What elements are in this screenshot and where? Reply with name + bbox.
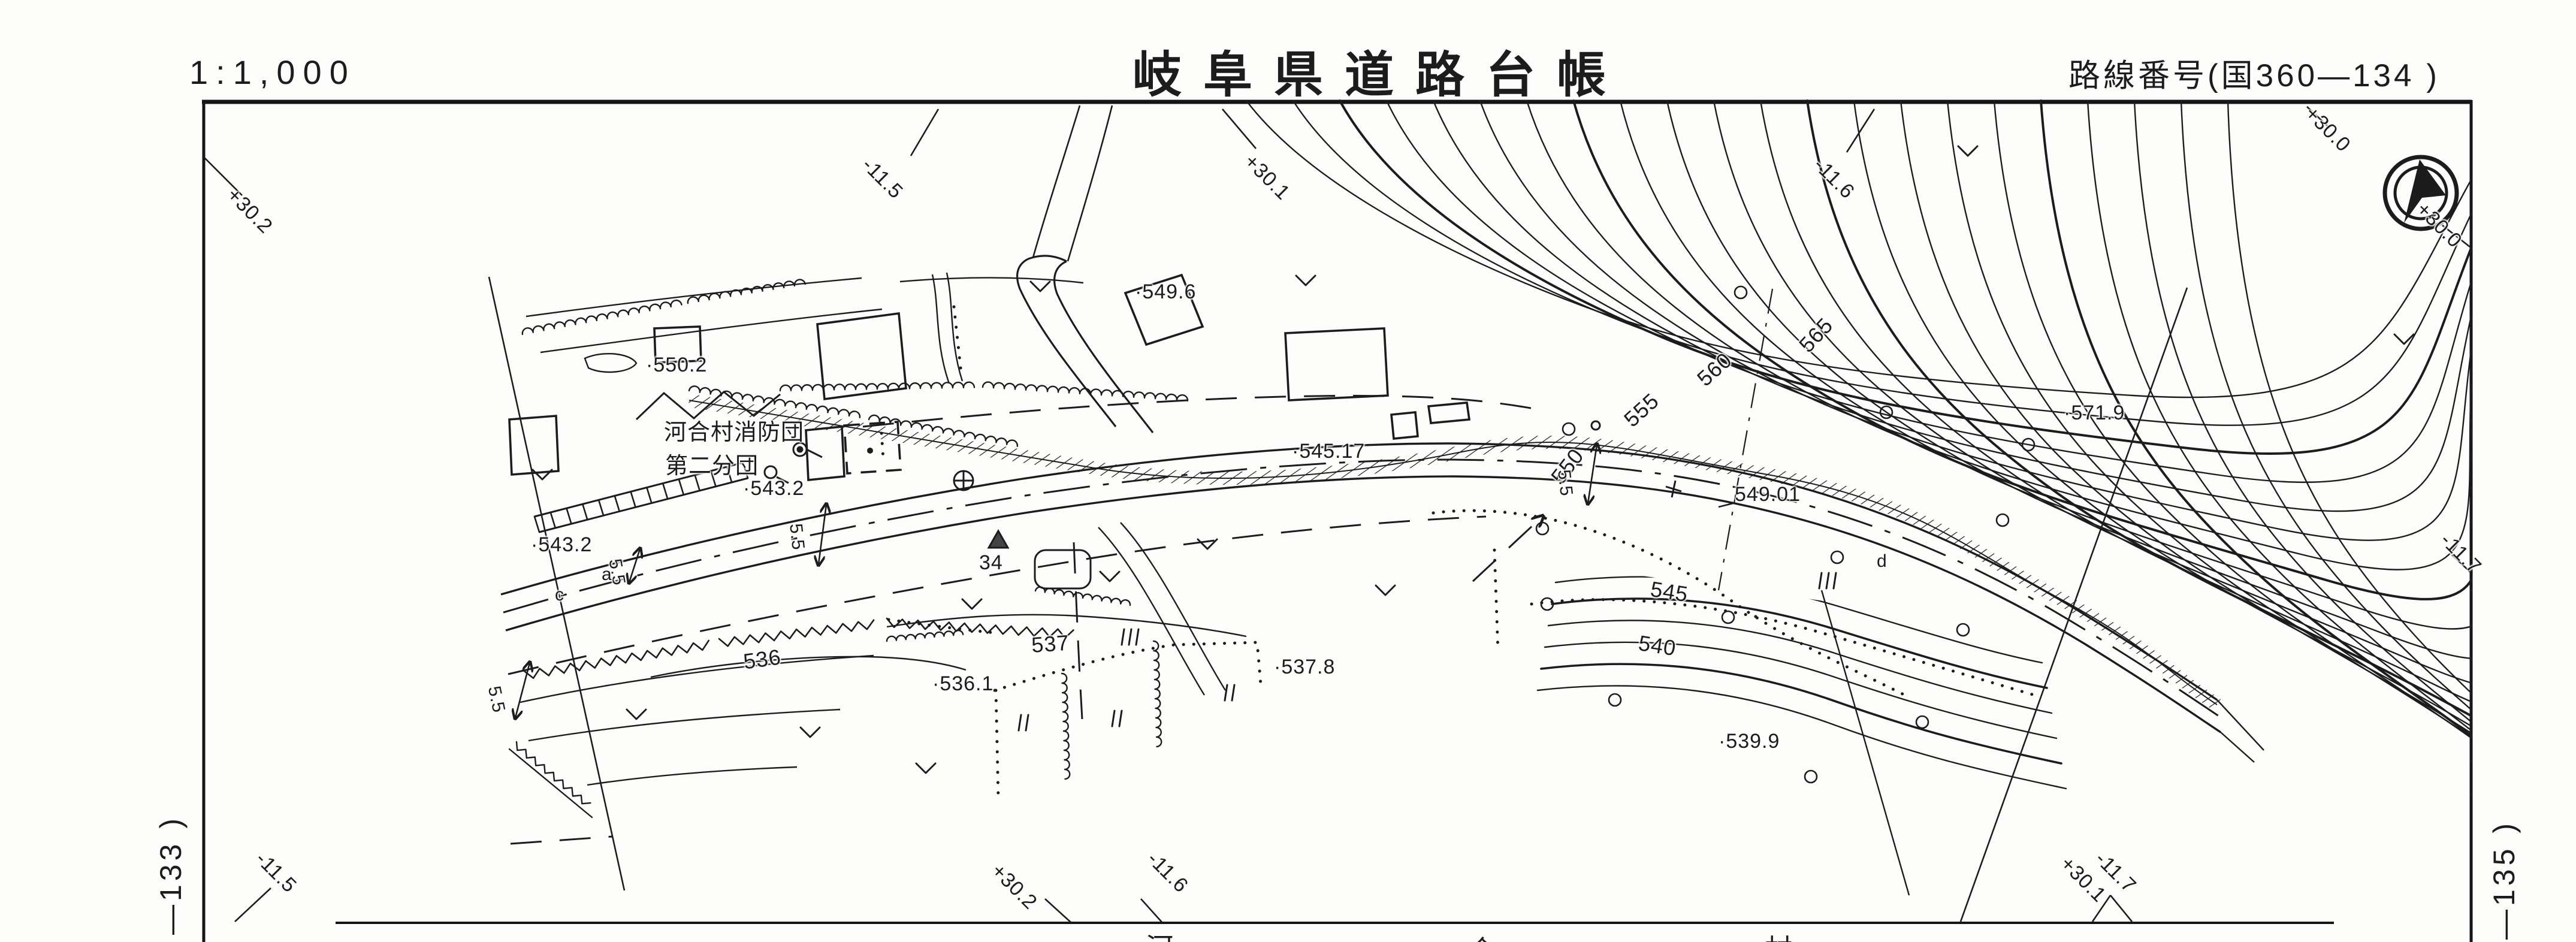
map-label: 5.5: [1553, 469, 1576, 497]
dotted-boundaries: [881, 307, 2039, 798]
map-label: c: [555, 585, 564, 605]
map-label: ·539.9: [1719, 730, 1780, 753]
map-label: ·550.2: [646, 354, 707, 377]
map-label: 5.5: [785, 523, 808, 551]
map-label: 536: [742, 644, 783, 674]
map-label: 537: [1031, 630, 1070, 658]
map-label: ·543.2: [531, 533, 592, 557]
map-label: ·537.8: [1274, 656, 1335, 679]
slope-hatch-band: [689, 400, 2217, 705]
road-ledger-sheet: 1:1,000 岐阜県道路台帳 路線番号(国360—134 ) —133 ) —…: [0, 0, 2576, 942]
map-label: ·545.17: [1292, 440, 1365, 463]
map-label: ·536.1: [932, 672, 993, 696]
terrain-lines: [520, 273, 1246, 785]
benchmark-circle-cross: [954, 471, 973, 490]
width-arrows: [515, 445, 1597, 718]
map-label: ·543.2: [743, 477, 804, 500]
map-label: ·549.6: [1135, 280, 1196, 304]
map-label: d: [1877, 551, 1888, 572]
contour-field-lower: [1538, 577, 2066, 789]
map-label: 第二分団: [665, 447, 759, 480]
vegetation-marks: [533, 146, 2414, 783]
map-label: 549.01: [1735, 483, 1801, 506]
map-label: ·571.9: [2064, 401, 2125, 425]
map-label: a: [602, 564, 612, 585]
map-label: 34: [979, 551, 1003, 575]
cliff-sawtooth: [509, 618, 1073, 817]
map-label: 河合村消防団: [664, 413, 804, 446]
survey-triangle: [989, 531, 1008, 548]
match-lines: [489, 277, 2187, 922]
map-canvas: [0, 0, 2576, 942]
